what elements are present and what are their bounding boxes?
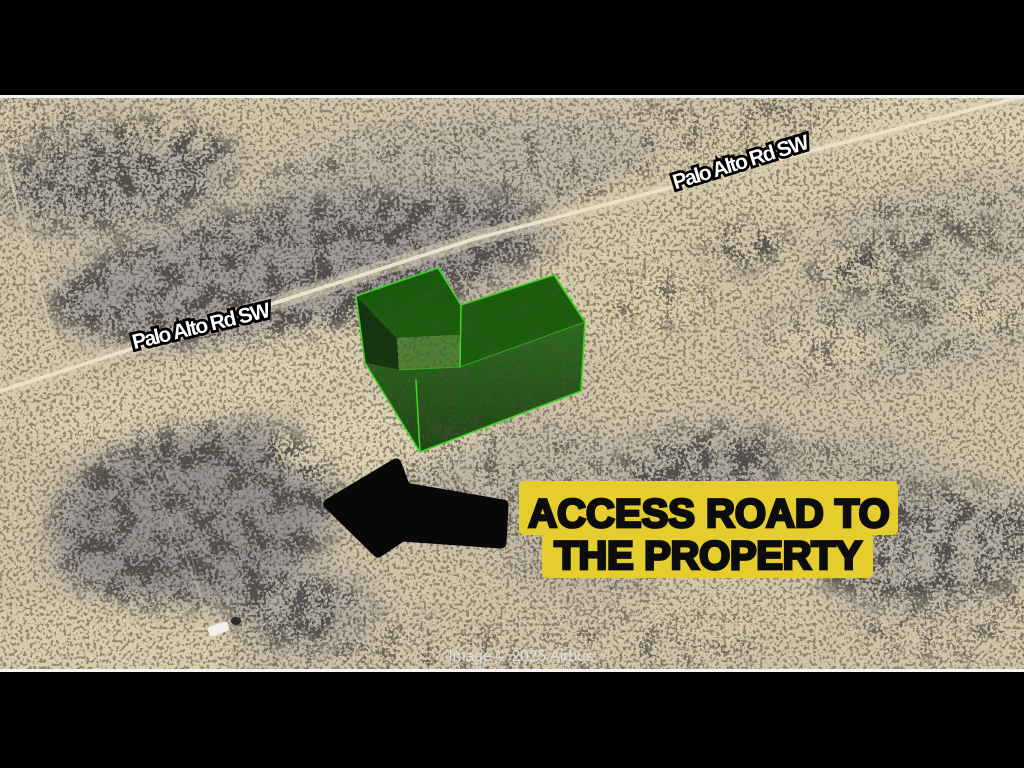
svg-text:ACCESS ROAD TO: ACCESS ROAD TO xyxy=(528,492,890,536)
svg-text:Image © 2025 Airbus: Image © 2025 Airbus xyxy=(449,648,594,665)
svg-text:THE PROPERTY: THE PROPERTY xyxy=(554,534,862,578)
